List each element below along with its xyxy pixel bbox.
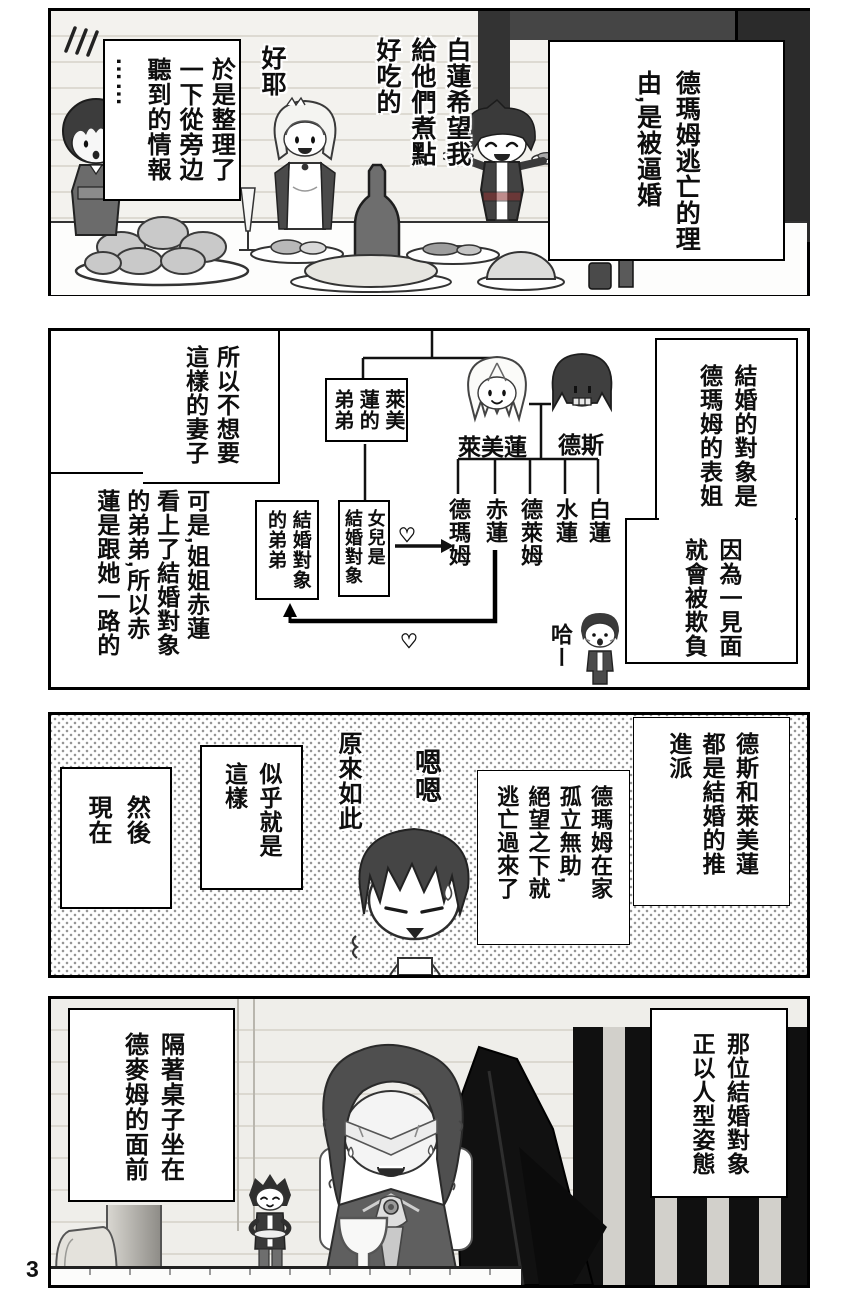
speech-laugh: 哈ー — [549, 623, 571, 669]
label-mother: 萊美蓮 — [458, 428, 527, 462]
panel-3-recap: 德斯和萊美蓮 都是結婚的推 進派 德瑪姆在家 孤立無助, 絕望之下就 逃亡過來了… — [48, 712, 810, 978]
box-partner-brother-text: 結婚對象 的弟弟 — [262, 510, 311, 598]
door-lintel — [500, 11, 745, 40]
speech-yay: 好耶 — [254, 45, 289, 97]
caption-text-bully: 因為一見面 就會被欺負 — [677, 538, 746, 662]
caption-box-push: 德斯和萊美蓮 都是結婚的推 進派 — [633, 717, 790, 906]
box-daughter-partner: 女兒是 結婚對象 — [338, 500, 390, 597]
pondering-boy-head — [348, 818, 481, 975]
narration-box-info: 於是整理了 一下從旁边 聽到的情報 …… — [103, 39, 241, 201]
panel-4-table-meeting: 隔著桌子坐在 德麥姆的面前 那位結婚對象 正以人型姿態 — [48, 996, 810, 1288]
child-dmaim: 德瑪姆 — [447, 498, 469, 567]
box-remilen-brother: 萊美 蓮的 弟弟 — [325, 378, 408, 442]
panel-2-family-tree: 所以不想要 這樣的妻子 可是,姐姐赤蓮 看上了結婚對象 的弟弟,所以赤 蓮是跟她… — [48, 328, 810, 690]
speech-hmm: 嗯嗯 — [412, 748, 439, 804]
laughing-chibi-boy — [573, 609, 627, 685]
caption-text-escape: 德瑪姆在家 孤立無助, 絕望之下就 逃亡過來了 — [491, 785, 616, 944]
emphasis-marks-icon — [61, 23, 101, 57]
caption-box-now: 然後 現在 — [60, 767, 172, 909]
caption-box-seems: 似乎就是 這樣 — [200, 745, 303, 890]
mother-remilen-face — [459, 351, 535, 427]
caption-text-partner: 結婚的對象是 德瑪姆的表姐 — [692, 364, 761, 518]
caption-box-human-form: 那位結婚對象 正以人型姿態 — [650, 1008, 788, 1198]
caption-box-wife: 所以不想要 這樣的妻子 — [143, 331, 280, 484]
caption-text-seems: 似乎就是 這樣 — [217, 762, 286, 888]
manga-page: 於是整理了 一下從旁边 聽到的情報 …… 好耶 白蓮希望我 給他們煮點 好吃的 … — [0, 0, 856, 1296]
wine-bottle — [355, 165, 399, 269]
caption-text-now: 然後 現在 — [78, 795, 155, 907]
table-edge-line — [51, 1266, 521, 1269]
caption-text-table: 隔著桌子坐在 德麥姆的面前 — [116, 1032, 188, 1200]
label-father: 德斯 — [558, 426, 604, 460]
narration-box-reason: 德瑪姆逃亡的理 由,是被逼婚 — [548, 40, 785, 261]
child-hakuren: 白蓮 — [587, 498, 609, 544]
maid-girl — [259, 91, 351, 231]
panel-1-dinner-scene: 於是整理了 一下從旁边 聽到的情報 …… 好耶 白蓮希望我 給他們煮點 好吃的 … — [48, 8, 810, 296]
caption-text-push: 德斯和萊美蓮 都是結婚的推 進派 — [661, 732, 761, 905]
caption-box-partner: 結婚的對象是 德瑪姆的表姐 — [655, 338, 798, 520]
caption-sister: 可是,姐姐赤蓮 看上了結婚對象 的弟弟,所以赤 蓮是跟她一路的 — [91, 489, 211, 657]
empty-caption-box — [51, 331, 145, 474]
narration-text-reason: 德瑪姆逃亡的理 由,是被逼婚 — [628, 70, 706, 259]
child-doraim: 德萊姆 — [519, 498, 541, 567]
child-suiren: 水蓮 — [554, 498, 576, 544]
box-remilen-brother-text: 萊美 蓮的 弟弟 — [328, 389, 405, 440]
caption-box-table: 隔著桌子坐在 德麥姆的面前 — [68, 1008, 235, 1202]
table-surface — [51, 1269, 521, 1285]
speech-cook: 白蓮希望我 給他們煮點 好吃的 — [369, 37, 474, 167]
caption-text-human-form: 那位結婚對象 正以人型姿態 — [685, 1032, 754, 1196]
box-daughter-partner-text: 女兒是 結婚對象 — [341, 509, 386, 595]
page-number: 3 — [26, 1256, 39, 1283]
heart-icon: ♡ — [400, 629, 418, 654]
caption-box-bully: 因為一見面 就會被欺負 — [625, 518, 798, 664]
box-partner-brother: 結婚對象 的弟弟 — [255, 500, 319, 600]
father-des-face — [545, 349, 619, 423]
narration-text-info: 於是整理了 一下從旁边 聽到的情報 …… — [108, 57, 237, 199]
chibi-boy-with-plate — [239, 1169, 301, 1281]
child-sekiren: 赤蓮 — [484, 498, 506, 544]
speech-isee: 原來如此 — [335, 731, 359, 831]
box-seam-cover — [659, 515, 795, 525]
caption-text-wife: 所以不想要 這樣的妻子 — [179, 345, 241, 482]
caption-box-escape: 德瑪姆在家 孤立無助, 絕望之下就 逃亡過來了 — [477, 770, 630, 945]
heart-icon: ♡ — [398, 523, 416, 548]
